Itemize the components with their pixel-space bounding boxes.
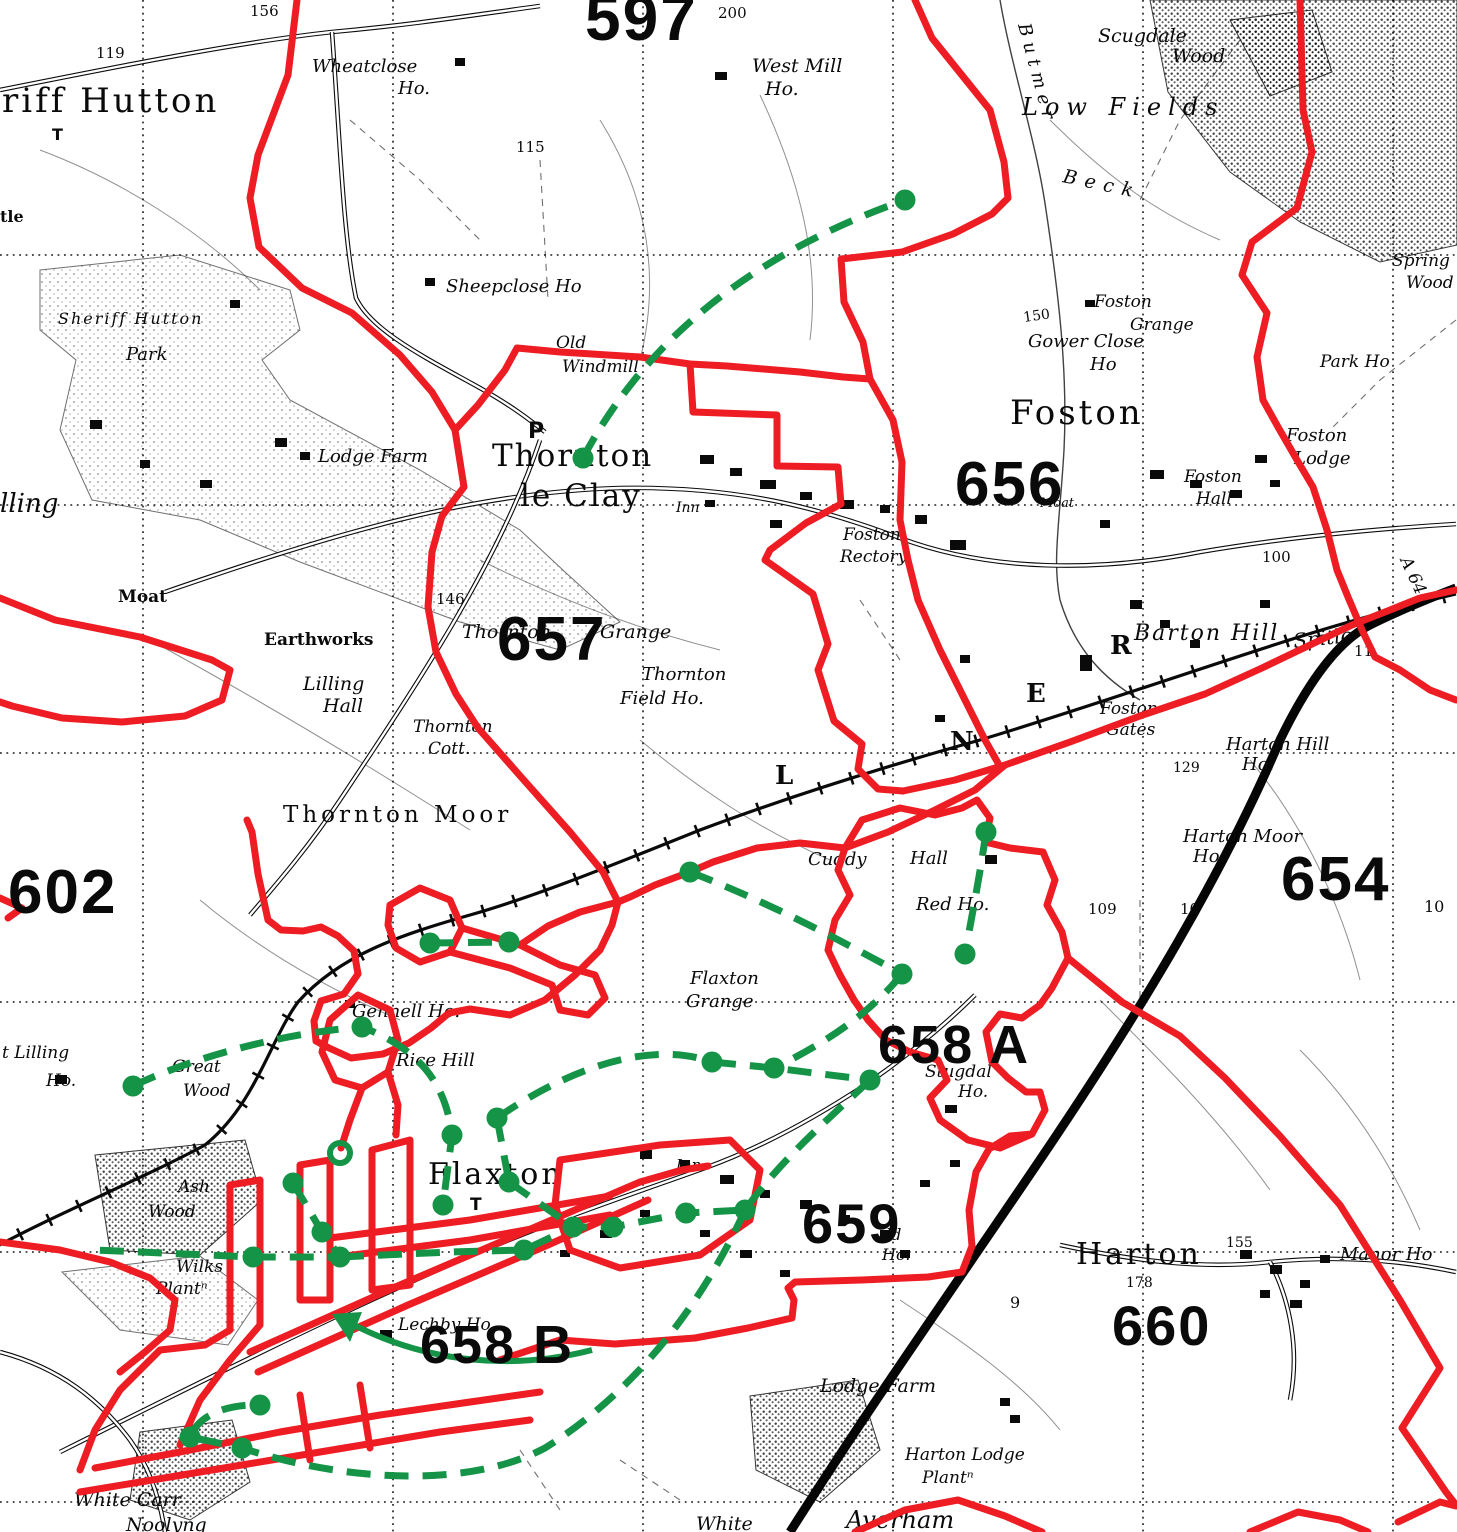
building [985, 855, 997, 864]
field-boundary-line [900, 1300, 1060, 1430]
map-label: T [52, 125, 63, 144]
green-junction-dot [487, 1108, 508, 1129]
map-label: Wood [1172, 45, 1225, 67]
building [1260, 600, 1270, 608]
map-label: Foston [1285, 425, 1347, 446]
building [950, 540, 966, 550]
map-label: Lodge Farm [317, 446, 428, 467]
map-label: Cott. [428, 739, 470, 759]
map-label: Ho. [1192, 846, 1225, 867]
red-boundary-path [618, 765, 1005, 902]
map-label: Wilks [176, 1257, 223, 1277]
map-label: 178 [1126, 1275, 1153, 1291]
map-label: Ho [1089, 354, 1117, 375]
building [455, 58, 465, 66]
building [950, 1160, 960, 1167]
map-label: Plantⁿ [921, 1468, 974, 1488]
map-label: 156 [250, 2, 279, 20]
green-junction-dot [250, 1395, 271, 1416]
building [90, 420, 102, 429]
map-label: 150 [1022, 306, 1051, 326]
building [300, 452, 310, 460]
map-label: 10 [1424, 897, 1444, 916]
building [275, 438, 287, 447]
map-label: 100 [1262, 548, 1291, 566]
map-label: Lodge Farm [819, 1375, 936, 1397]
green-junction-dot [680, 862, 701, 883]
building [200, 480, 212, 488]
map-label: Thornton Moor [283, 802, 512, 828]
map-label: Flaxton [689, 968, 759, 989]
map-label: Harton Moor [1182, 826, 1304, 847]
field-boundary-line [1300, 1050, 1420, 1230]
building [1080, 655, 1092, 671]
map-label: L [775, 761, 793, 791]
field-boundary-line [760, 95, 813, 340]
map-label: 129 [1173, 760, 1200, 776]
map-label: A 64 [1395, 552, 1431, 598]
map-label: N [950, 727, 974, 757]
building [880, 505, 890, 513]
building [920, 1180, 930, 1187]
green-junction-dot [955, 944, 976, 965]
map-label: lling [0, 489, 58, 519]
field-boundary-line [600, 120, 650, 360]
map-label: Ho. [397, 78, 430, 99]
map-label: Gower Close [1028, 331, 1144, 352]
map-label: Ho. [1241, 754, 1274, 775]
district-number: 659 [802, 1192, 901, 1255]
district-number: 654 [1281, 845, 1390, 914]
map-label: Wood [148, 1202, 196, 1222]
map-label: 200 [718, 4, 747, 22]
map-label: le Clay [520, 478, 642, 514]
district-number: 660 [1112, 1294, 1211, 1357]
map-label: White [696, 1513, 753, 1532]
map-label: Ho. [45, 1071, 76, 1091]
map-label: Park Ho [1319, 352, 1390, 372]
green-junction-dot [676, 1203, 697, 1224]
district-number: 658 A [878, 1015, 1030, 1075]
map-label: Foston [1093, 292, 1152, 312]
building [1255, 455, 1267, 463]
green-junction-dot [420, 933, 441, 954]
map-label: Sheriff Hutton [58, 309, 203, 328]
map-label: Hall [1195, 489, 1232, 509]
building [1270, 1265, 1282, 1274]
field-boundary-dashed-line [1330, 320, 1456, 430]
map-label: Field Ho. [619, 688, 704, 709]
green-junction-dot [892, 964, 913, 985]
map-label: riff Hutton [2, 81, 219, 121]
red-boundary-path [841, 0, 1008, 379]
map-label: Grange [686, 991, 753, 1012]
map-label: 115 [516, 138, 545, 156]
building [780, 1270, 790, 1277]
green-dashed-link [712, 1062, 870, 1080]
map-label: Manor Ho [1339, 1244, 1433, 1265]
building [1000, 1398, 1010, 1406]
green-junction-dot [499, 932, 520, 953]
map-canvas[interactable]: riff HuttonT119156200115WheatcloseHo.Wes… [0, 0, 1457, 1532]
building [1150, 470, 1164, 479]
green-junction-dot [442, 1125, 463, 1146]
building [730, 468, 742, 476]
map-label: Wood [1406, 273, 1454, 293]
building [935, 715, 945, 722]
green-junction-dot [243, 1247, 264, 1268]
map-label: Sheepclose Ho [446, 276, 582, 297]
map-label: Ho. [957, 1082, 988, 1102]
building [800, 492, 812, 500]
map-label: 9 [1010, 1293, 1020, 1312]
building [770, 520, 782, 528]
green-junction-dot [180, 1427, 201, 1448]
map-label: Harton Hill [1225, 734, 1330, 755]
building [140, 460, 150, 468]
building [760, 480, 776, 489]
red-boundary-path [0, 598, 230, 722]
map-label: Moat [118, 587, 167, 607]
woodland-area [750, 1380, 880, 1502]
building [1100, 520, 1110, 528]
map-viewport[interactable]: riff HuttonT119156200115WheatcloseHo.Wes… [0, 0, 1457, 1532]
map-label: 119 [96, 44, 125, 62]
red-boundary-path [520, 902, 708, 1182]
green-dashed-link [430, 942, 509, 943]
green-junction-dot [573, 448, 594, 469]
district-number: 656 [955, 450, 1064, 519]
building [425, 278, 435, 286]
map-label: Ho. [764, 78, 799, 100]
building [705, 500, 715, 507]
map-label: T [470, 1195, 482, 1215]
map-label: Harton Lodge [904, 1445, 1025, 1465]
red-boundary-path [500, 1134, 1032, 1360]
map-label: Foston [1010, 393, 1144, 433]
map-label: tle [0, 207, 24, 226]
green-ring-dot [330, 1143, 350, 1163]
green-dashed-link [690, 872, 902, 974]
building [740, 1250, 752, 1258]
building [1260, 1290, 1270, 1298]
green-junction-dot [976, 822, 997, 843]
field-boundary-dashed-line [860, 600, 900, 660]
green-junction-dot [499, 1172, 520, 1193]
road-centre [332, 32, 545, 432]
map-label: Foston [1183, 467, 1242, 487]
building [1320, 1255, 1330, 1263]
green-junction-dot [895, 190, 916, 211]
green-junction-dot [312, 1222, 333, 1243]
building [915, 515, 927, 524]
red-boundary-path [870, 379, 998, 763]
red-boundary-path [455, 348, 870, 430]
map-label: Hall [322, 695, 363, 717]
road-casing [1270, 1262, 1294, 1400]
building [640, 1210, 650, 1217]
map-label: Earthworks [264, 630, 373, 650]
map-label: R [1110, 631, 1132, 661]
map-label: Beck [1060, 165, 1143, 203]
building [1240, 1250, 1252, 1259]
map-label: 10 [1180, 900, 1199, 918]
building [945, 1105, 957, 1113]
map-label: Wheatclose [312, 56, 417, 77]
map-label: Scugdale [1098, 25, 1187, 47]
map-label: Spring [1392, 251, 1450, 271]
map-label: Wood [183, 1081, 231, 1101]
building [715, 72, 727, 80]
map-label: Grange [1130, 315, 1194, 335]
green-junction-dot [283, 1173, 304, 1194]
map-label: t Lilling [2, 1043, 69, 1063]
field-boundary-dashed-line [520, 1450, 560, 1510]
building [700, 1230, 710, 1237]
building [1130, 600, 1142, 609]
map-label: 146 [436, 590, 465, 608]
map-label: Park [125, 344, 168, 365]
map-label: Thornton [642, 664, 726, 685]
building [1290, 1300, 1302, 1308]
map-label: Rectory [839, 547, 908, 567]
district-number: 658 B [420, 1315, 574, 1375]
map-label: Barton Hill [1133, 621, 1279, 646]
map-label: West Mill [752, 55, 842, 77]
green-junction-dot [123, 1076, 144, 1097]
road-casing [332, 32, 545, 432]
building [1270, 480, 1280, 487]
map-label: 155 [1226, 1235, 1253, 1251]
green-junction-dot [514, 1240, 535, 1261]
building [1300, 1280, 1310, 1288]
map-label: Foston [842, 525, 901, 545]
building [1010, 1415, 1020, 1423]
green-junction-dot [563, 1217, 584, 1238]
map-label: Inn [675, 500, 700, 516]
green-dashed-link [965, 832, 986, 954]
map-label: Windmill [562, 357, 639, 377]
map-label: Butmer [1013, 20, 1061, 127]
building [700, 455, 714, 464]
building [230, 300, 240, 308]
green-junction-dot [352, 1017, 373, 1038]
green-junction-dot [232, 1438, 253, 1459]
building [720, 1175, 734, 1184]
green-junction-dot [433, 1195, 454, 1216]
green-dashed-link [497, 1054, 712, 1118]
field-boundary-dashed-line [620, 1460, 680, 1500]
red-boundary-path [1068, 958, 1456, 1505]
green-junction-dot [702, 1052, 723, 1073]
map-label: Hall [909, 848, 948, 869]
map-label: Grange [600, 621, 671, 643]
map-label: Lilling [302, 673, 364, 695]
district-number: 602 [8, 858, 117, 927]
district-number: 597 [585, 0, 698, 54]
map-label: Thornton [492, 438, 653, 474]
green-junction-dot [764, 1058, 785, 1079]
map-label: Red Ho. [915, 894, 989, 915]
map-label: Ash [176, 1177, 210, 1197]
map-label: E [1026, 679, 1046, 709]
map-label: Noolyng [125, 1514, 207, 1532]
green-junction-dot [735, 1200, 756, 1221]
field-boundary-dashed-line [350, 120, 480, 240]
district-number: 657 [497, 605, 606, 674]
map-label: 109 [1088, 900, 1117, 918]
green-junction-dot [330, 1247, 351, 1268]
building [640, 1150, 652, 1159]
red-boundary-path [690, 364, 903, 791]
green-junction-dot [603, 1217, 624, 1238]
map-label: Harton [1076, 1237, 1202, 1272]
building [960, 655, 970, 663]
